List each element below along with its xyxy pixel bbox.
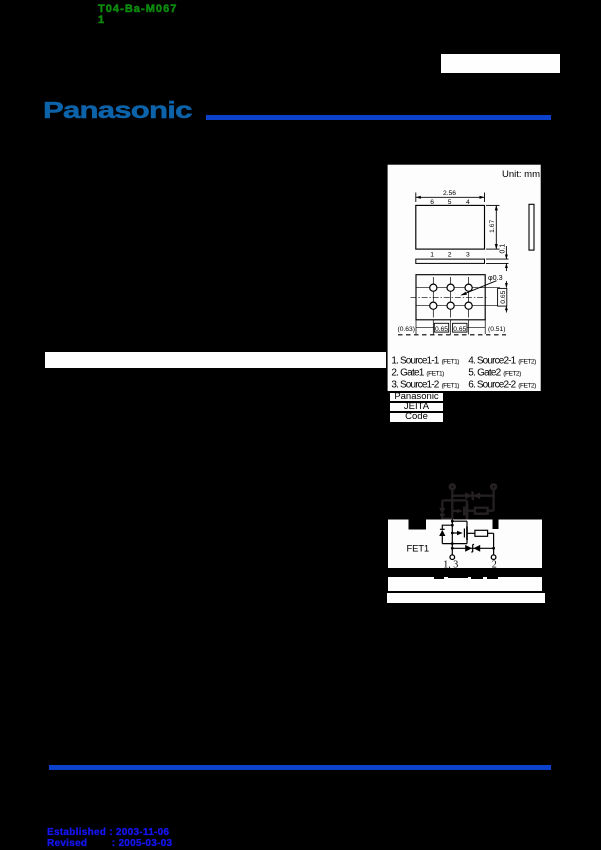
svg-text:4: 4 xyxy=(466,199,470,206)
svg-text:(FET2): (FET2) xyxy=(518,383,536,390)
svg-text:FET1: FET1 xyxy=(407,544,429,555)
svg-text:φ0.3: φ0.3 xyxy=(488,273,503,282)
svg-text:2.56: 2.56 xyxy=(443,190,456,197)
svg-text:0.65: 0.65 xyxy=(435,326,448,333)
svg-text:(FET1): (FET1) xyxy=(426,371,444,378)
svg-text:0.65: 0.65 xyxy=(453,326,466,333)
svg-text:(FET2): (FET2) xyxy=(518,359,536,366)
svg-text:2: 2 xyxy=(448,252,452,259)
svg-text:3: 3 xyxy=(466,252,470,259)
svg-text:4. Source2-1: 4. Source2-1 xyxy=(468,356,516,367)
svg-text:(FET2): (FET2) xyxy=(503,371,521,378)
svg-text:Unit: mm: Unit: mm xyxy=(502,169,540,180)
svg-text:3. Source1-2: 3. Source1-2 xyxy=(391,380,439,391)
svg-text:6. Source2-2: 6. Source2-2 xyxy=(468,380,516,391)
svg-text:1.67: 1.67 xyxy=(489,220,496,233)
svg-text:5: 5 xyxy=(448,199,452,206)
svg-text:2. Gate1: 2. Gate1 xyxy=(391,368,424,379)
svg-text:(0.51): (0.51) xyxy=(488,326,505,333)
svg-text:(0.63): (0.63) xyxy=(398,326,415,333)
svg-text:0.65: 0.65 xyxy=(500,290,507,303)
svg-text:1: 1 xyxy=(430,252,434,259)
svg-text:5. Gate2: 5. Gate2 xyxy=(468,368,501,379)
svg-text:(FET1): (FET1) xyxy=(442,383,460,390)
svg-text:(FET1): (FET1) xyxy=(442,359,460,366)
svg-text:1. Source1-1: 1. Source1-1 xyxy=(391,356,439,367)
svg-text:6: 6 xyxy=(430,199,434,206)
svg-text:0.1: 0.1 xyxy=(500,244,507,254)
